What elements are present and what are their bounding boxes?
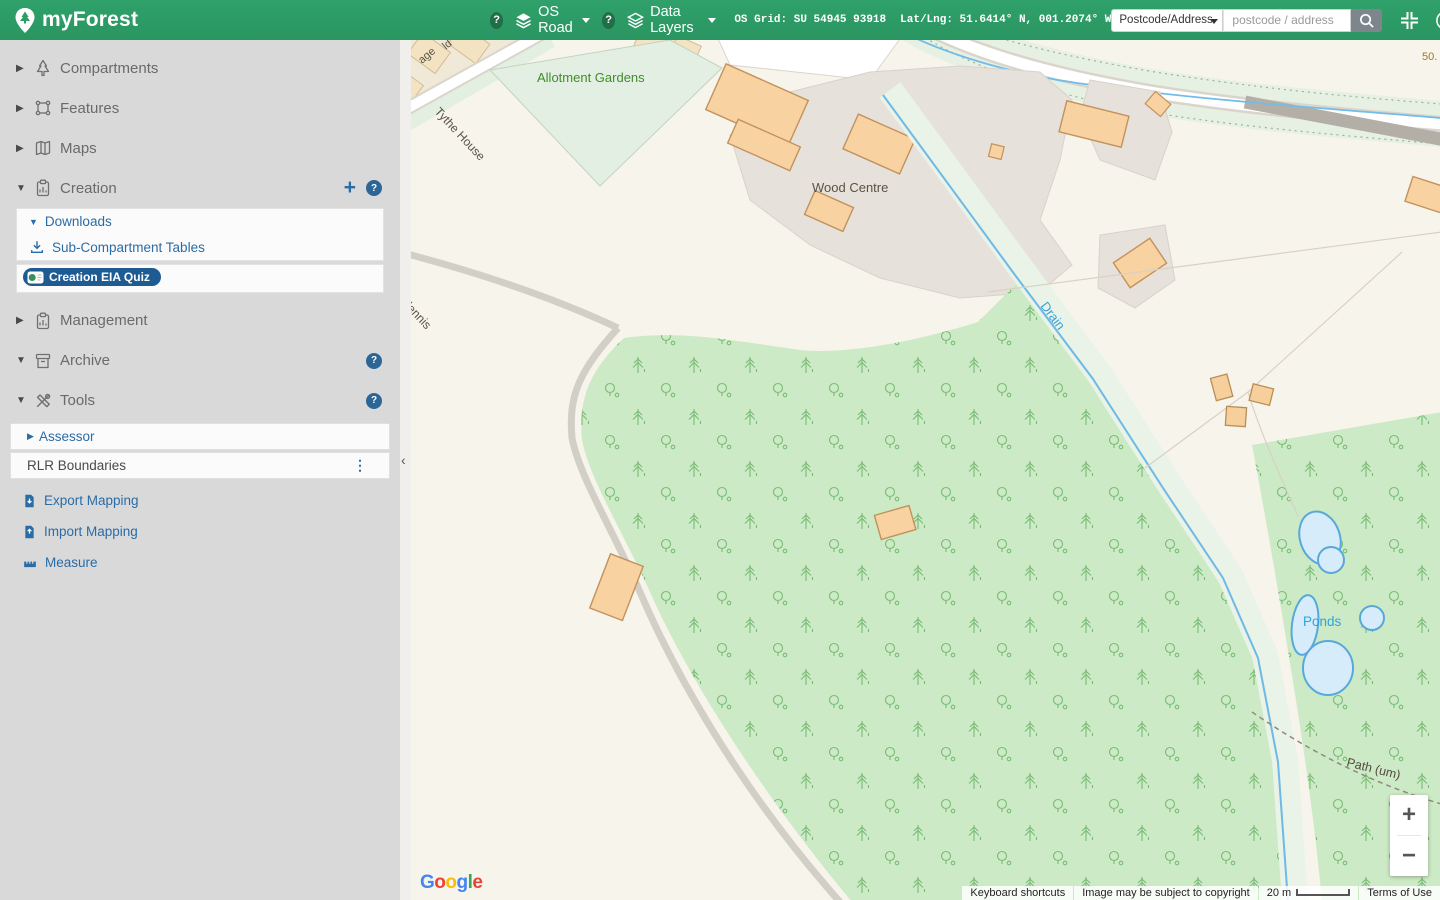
google-letter: G <box>420 872 434 893</box>
map-scale: 20 m <box>1259 886 1358 900</box>
chevron-right-icon: ▶ <box>27 431 39 442</box>
archive-help-icon[interactable]: ? <box>366 353 382 369</box>
tools-help-icon[interactable]: ? <box>366 393 382 409</box>
user-avatar-icon <box>1435 10 1440 31</box>
map-canvas[interactable]: Allotment Gardens Wood Centre Tythe Hous… <box>400 40 1440 900</box>
sidebar-item-label: Creation <box>60 180 117 197</box>
copyright-notice: Image may be subject to copyright <box>1074 886 1258 900</box>
clipboard-chart-icon <box>34 179 52 197</box>
top-header: myForest ? OS Road ? Data Layers OS Grid… <box>0 0 1440 40</box>
import-mapping-link[interactable]: Import Mapping <box>0 518 400 546</box>
datalayers-help-icon[interactable]: ? <box>602 12 615 29</box>
google-letter: e <box>472 872 482 893</box>
map-label-ponds: Ponds <box>1303 614 1342 629</box>
creation-eia-quiz-row: Creation EIA Quiz <box>16 264 384 293</box>
download-icon <box>29 239 45 255</box>
measure-label: Measure <box>45 555 98 570</box>
sidebar-item-archive[interactable]: ▼ Archive ? <box>0 341 400 381</box>
coordinates-readout: OS Grid: SU 54945 93918 Lat/Lng: 51.6414… <box>734 14 1111 26</box>
creation-eia-quiz-button[interactable]: Creation EIA Quiz <box>23 268 161 286</box>
basemap-help-icon[interactable]: ? <box>490 12 503 29</box>
archive-box-icon <box>34 352 52 370</box>
export-mapping-label: Export Mapping <box>44 493 139 508</box>
folded-map-icon <box>34 139 52 157</box>
header-search-area: Postcode/Address <box>1111 9 1440 32</box>
measure-link[interactable]: Measure <box>0 549 400 576</box>
user-account-menu[interactable] <box>1435 10 1440 31</box>
chevron-down-icon: ▼ <box>16 183 30 194</box>
chevron-right-icon: ▶ <box>16 143 30 154</box>
search-type-select[interactable]: Postcode/Address <box>1111 9 1223 32</box>
zoom-in-button[interactable]: + <box>1390 795 1428 835</box>
downloads-label: Downloads <box>45 214 112 229</box>
tree-icon <box>34 59 52 77</box>
map-label-allotment-gardens: Allotment Gardens <box>537 70 645 85</box>
sidebar-item-label: Maps <box>60 140 97 157</box>
scale-label: 20 m <box>1267 887 1291 899</box>
scale-bar <box>1296 889 1350 896</box>
add-creation-button[interactable]: + <box>344 179 356 197</box>
google-letter: o <box>434 872 445 893</box>
caret-down-icon <box>1210 19 1218 24</box>
downloads-toggle[interactable]: ▼ Downloads <box>17 209 383 234</box>
myforest-app: myForest ? OS Road ? Data Layers OS Grid… <box>0 0 1440 900</box>
brand-logo[interactable]: myForest <box>0 7 138 34</box>
assessor-label: Assessor <box>39 429 95 444</box>
map-attribution-bar: Keyboard shortcuts Image may be subject … <box>961 886 1440 900</box>
sidebar-item-features[interactable]: ▶ Features <box>0 88 400 128</box>
sidebar-item-label: Archive <box>60 352 110 369</box>
latlng-value: Lat/Lng: 51.6414° N, 001.2074° W <box>900 14 1111 26</box>
subcompartment-tables-link[interactable]: Sub-Compartment Tables <box>17 234 383 260</box>
sidebar-item-label: Compartments <box>60 60 158 77</box>
google-logo[interactable]: Google <box>420 872 482 894</box>
search-input[interactable] <box>1223 9 1351 32</box>
creation-downloads-panel: ▼ Downloads Sub-Compartment Tables <box>16 208 384 261</box>
subcompartment-tables-label: Sub-Compartment Tables <box>52 240 205 255</box>
search-button[interactable] <box>1351 9 1382 32</box>
os-grid-value: OS Grid: SU 54945 93918 <box>734 14 886 26</box>
sidebar-item-label: Management <box>60 312 148 329</box>
header-map-controls: ? OS Road ? Data Layers OS Grid: SU 5494… <box>490 4 1111 36</box>
quiz-thumbnail-icon <box>27 271 44 284</box>
caret-down-icon <box>582 18 590 23</box>
clipboard-chart-icon <box>34 312 52 330</box>
chevron-down-icon: ▼ <box>16 395 30 406</box>
export-mapping-link[interactable]: Export Mapping <box>0 487 400 515</box>
search-icon <box>1358 12 1375 29</box>
rlr-boundaries-label: RLR Boundaries <box>27 458 126 473</box>
search-type-value: Postcode/Address <box>1119 14 1212 26</box>
google-letter: g <box>457 872 468 893</box>
kebab-menu-icon[interactable]: ⋮ <box>343 457 377 474</box>
terms-of-use-link[interactable]: Terms of Use <box>1359 886 1440 900</box>
datalayers-dropdown[interactable]: Data Layers <box>627 4 716 36</box>
sidebar-item-label: Features <box>60 100 119 117</box>
chevron-right-icon: ▶ <box>16 315 30 326</box>
sidebar-item-management[interactable]: ▶ Management <box>0 301 400 341</box>
sidebar-item-creation[interactable]: ▼ Creation + ? <box>0 168 400 208</box>
chevron-right-icon: ▶ <box>16 63 30 74</box>
polygon-icon <box>34 99 52 117</box>
datalayers-label: Data Layers <box>650 4 700 36</box>
keyboard-shortcuts-button[interactable]: Keyboard shortcuts <box>962 886 1073 900</box>
layers-icon <box>515 12 532 29</box>
rlr-boundaries-row[interactable]: RLR Boundaries ⋮ <box>10 452 390 479</box>
chevron-left-icon: ‹ <box>401 452 406 468</box>
sidebar-item-tools[interactable]: ▼ Tools ? <box>0 381 400 421</box>
ruler-icon <box>22 555 38 570</box>
basemap-dropdown[interactable]: OS Road <box>515 4 590 36</box>
quiz-label: Creation EIA Quiz <box>49 270 150 284</box>
map-label-wood-centre: Wood Centre <box>812 180 888 195</box>
layers-icon <box>627 12 644 29</box>
zoom-out-button[interactable]: − <box>1390 836 1428 876</box>
file-export-icon <box>22 493 37 509</box>
creation-help-icon[interactable]: ? <box>366 180 382 196</box>
brand-name: myForest <box>42 8 138 32</box>
assessor-row[interactable]: ▶ Assessor <box>10 423 390 450</box>
tools-icon <box>34 392 52 410</box>
map-label-contour: 50. <box>1422 51 1437 63</box>
chevron-down-icon: ▼ <box>16 355 30 366</box>
basemap-label: OS Road <box>538 4 574 36</box>
search-group: Postcode/Address <box>1111 9 1382 32</box>
caret-down-icon <box>708 18 716 23</box>
chevron-down-icon: ▼ <box>29 217 38 227</box>
fullscreen-toggle-icon[interactable] <box>1398 9 1421 32</box>
sidebar-item-compartments[interactable]: ▶ Compartments <box>0 48 400 88</box>
sidebar-collapse-handle[interactable]: ‹ <box>400 40 411 900</box>
file-import-icon <box>22 524 37 540</box>
sidebar-item-maps[interactable]: ▶ Maps <box>0 128 400 168</box>
map-pin-tree-icon <box>14 7 36 34</box>
map-zoom-control: + − <box>1390 795 1428 876</box>
sidebar-item-label: Tools <box>60 392 95 409</box>
import-mapping-label: Import Mapping <box>44 524 138 539</box>
chevron-right-icon: ▶ <box>16 103 30 114</box>
map-viewport: Allotment Gardens Wood Centre Tythe Hous… <box>400 40 1440 900</box>
sidebar: ▶ Compartments ▶ Features ▶ Maps <box>0 40 400 900</box>
google-letter: o <box>445 872 456 893</box>
